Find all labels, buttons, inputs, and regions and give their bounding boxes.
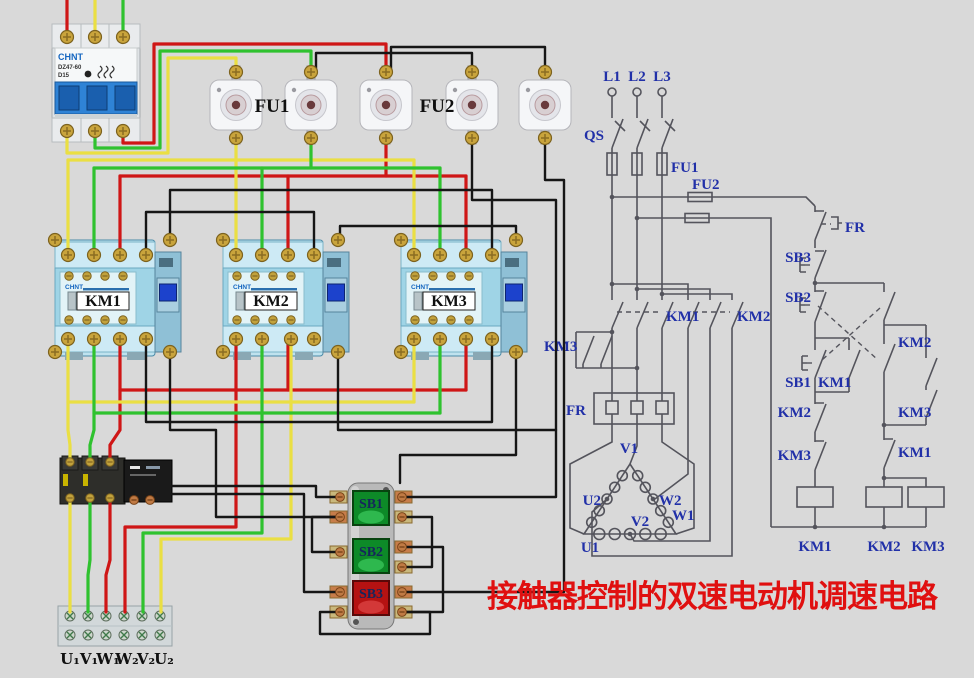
label-motor-v1: V1 [620,441,638,457]
km1-coil [797,487,833,507]
label-l2: L2 [628,69,646,85]
wiring-diagram-canvas: L1 L2 L3 QS FU1 FU2 FR SB3 SB2 SB1 KM1 K… [0,0,974,678]
contactor-km2-label: KM2 [253,293,289,310]
contactor-km3-label: KM3 [431,293,467,310]
km2-nc-interlock [815,392,826,442]
phase-terminal-l3 [658,88,666,96]
junction-dots [605,195,887,537]
label-km3-nc: KM3 [778,448,811,464]
label-km1-coil: KM1 [798,539,831,555]
terminal-label-w2: W₂ [114,650,138,668]
label-km1-nc: KM1 [898,445,931,461]
label-motor-u2: U2 [583,493,601,509]
schematic-diagram: L1 L2 L3 QS FU1 FU2 FR SB3 SB2 SB1 KM1 K… [544,69,945,556]
label-fu2: FU2 [692,177,720,193]
label-km1-main: KM1 [666,309,699,325]
label-km2-coil: KM2 [867,539,900,555]
label-fr-heater: FR [566,403,586,419]
label-km2-nc: KM2 [778,405,811,421]
terminal-label-v2: V₂ [136,650,155,668]
label-fu2-photo: FU2 [420,96,455,117]
phase-terminal-l1 [608,88,616,96]
terminal-label-u1: U₁ [60,650,80,668]
fr-nc-contact [815,206,842,248]
label-km2-selfhold: KM2 [898,335,931,351]
label-km3-coil: KM3 [911,539,944,555]
contactor-km3-brand: CHNT [411,284,429,291]
button-sb2-label: SB2 [359,545,383,560]
label-motor-w2: W2 [659,493,682,509]
qs-switch-symbol [612,96,675,148]
label-l1: L1 [603,69,621,85]
label-fu1: FU1 [671,160,699,176]
sb2-linked-contact [884,325,895,425]
label-km3-short: KM3 [544,339,577,355]
button-sb1: SB1 [353,491,389,525]
label-sb3: SB3 [785,250,811,266]
button-sb3: SB3 [353,581,389,615]
wiring-diagram-page: L1 L2 L3 QS FU1 FU2 FR SB3 SB2 SB1 KM1 K… [0,0,974,678]
label-qs: QS [584,128,604,144]
contactor-km1-brand: CHNT [65,284,83,291]
km3-nc-interlock [815,441,826,487]
label-motor-u1: U1 [581,540,599,556]
phase-terminal-l2 [633,88,641,96]
km3-short-contacts [576,332,637,368]
breaker-rating: D15 [58,73,70,79]
motor-terminal-strip [58,606,172,646]
button-sb1-label: SB1 [359,497,383,512]
sb2-button-no-half [818,283,895,360]
fr-heater-symbol [594,393,674,424]
label-fu1-photo: FU1 [255,96,290,117]
label-km1-aux: KM1 [818,375,851,391]
label-sb2: SB2 [785,290,811,306]
breaker-model: DZ47-60 [58,65,82,71]
contactor-km1-label: KM1 [85,293,121,310]
button-sb3-label: SB3 [359,587,383,602]
breaker-brand: CHNT [58,52,83,62]
label-motor-v2: V2 [631,514,649,530]
label-km3-aux: KM3 [898,405,931,421]
label-motor-w1: W1 [672,508,695,524]
label-fr-contact: FR [845,220,865,236]
km3-coil [908,487,944,507]
label-l3: L3 [653,69,671,85]
button-sb2: SB2 [353,539,389,573]
km1-main-contacts [612,302,673,328]
terminal-label-u2: U₂ [154,650,174,668]
page-title: 接触器控制的双速电动机调速电路 [487,579,939,615]
contactor-km2-brand: CHNT [233,284,251,291]
thermal-relay [60,456,172,504]
km2-coil [866,487,902,507]
label-km2-main: KM2 [737,309,770,325]
label-sb1: SB1 [785,375,811,391]
terminal-label-v1: V₁ [79,650,98,668]
breaker-cert-mark [85,71,92,78]
